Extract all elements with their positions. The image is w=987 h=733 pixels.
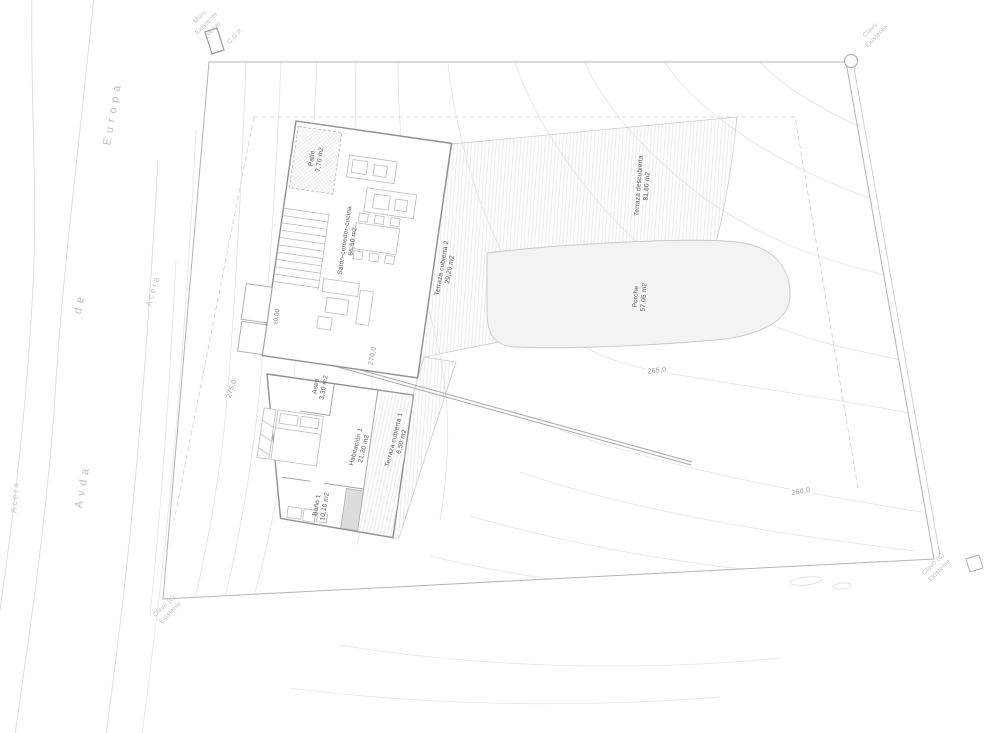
survey-marker-square-symbol xyxy=(966,555,983,572)
site-plan-drawing xyxy=(0,0,987,733)
room-label-porche: Porche57,05 m2 xyxy=(632,282,651,312)
survey-marker-circle-symbol xyxy=(845,55,858,68)
sidewalk-label-outer: Acera xyxy=(8,481,21,514)
street-lines xyxy=(0,0,158,733)
room-label-patio: Patio7,70 m2 xyxy=(307,146,327,173)
bed xyxy=(271,410,324,466)
site-plan-canvas: Europa de Avda Acera Acera Muro Existent… xyxy=(0,0,987,733)
